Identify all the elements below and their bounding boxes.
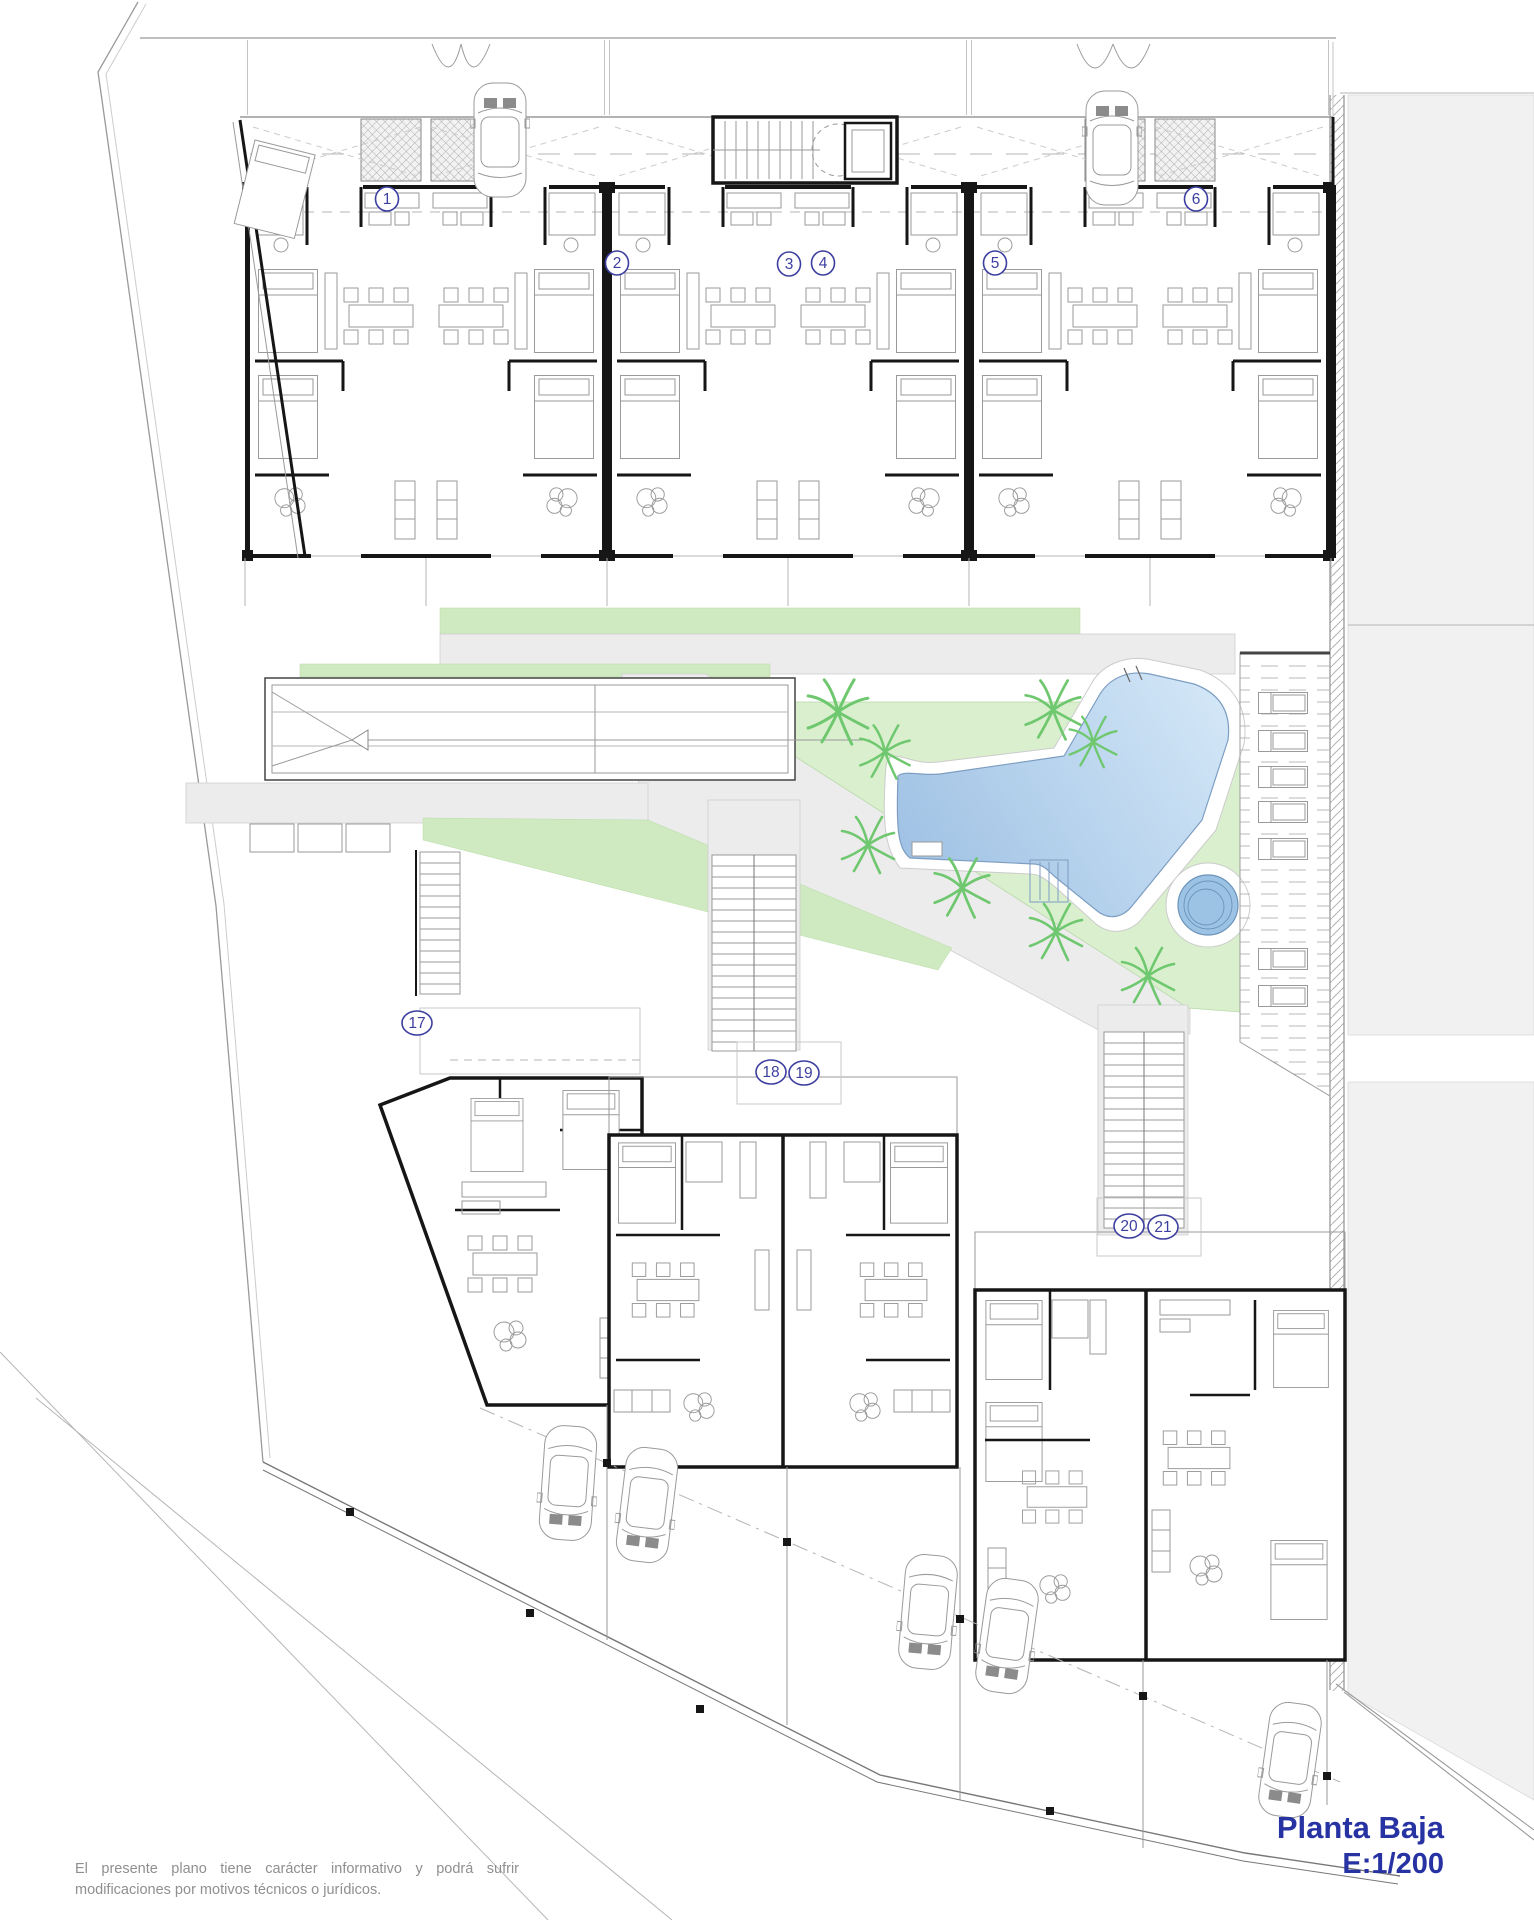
plan-title: Planta Baja xyxy=(1277,1810,1444,1847)
unit-label: 17 xyxy=(402,1011,432,1035)
car-icon xyxy=(1252,1699,1327,1820)
svg-text:1: 1 xyxy=(383,191,392,208)
unit-label: 1 xyxy=(376,187,399,211)
pool-bench xyxy=(912,842,942,856)
svg-text:3: 3 xyxy=(785,256,794,273)
stair-core xyxy=(713,117,897,183)
svg-text:19: 19 xyxy=(795,1065,812,1082)
sun-lounger-icon xyxy=(1259,692,1308,714)
svg-text:4: 4 xyxy=(819,255,828,272)
unit-label: 19 xyxy=(789,1061,819,1085)
unit-label: 20 xyxy=(1114,1214,1144,1238)
sun-lounger-icon xyxy=(1259,766,1308,788)
svg-text:2: 2 xyxy=(613,255,622,272)
disclaimer-line-2: modificaciones por motivos técnicos o ju… xyxy=(75,1882,381,1898)
sun-deck xyxy=(1240,653,1330,1096)
stair-18-19 xyxy=(708,800,800,1051)
title-block: Planta Baja E:1/200 xyxy=(1277,1810,1444,1881)
svg-text:20: 20 xyxy=(1120,1218,1138,1235)
car-icon xyxy=(893,1553,963,1672)
unit-17-block xyxy=(380,1008,642,1405)
car-icon xyxy=(1082,91,1142,205)
sun-lounger-icon xyxy=(1259,801,1308,823)
disclaimer-text: El presente plano tiene carácter informa… xyxy=(75,1859,519,1903)
sun-lounger-icon xyxy=(1259,948,1308,970)
site-plan-svg: 1234561718192021 xyxy=(0,0,1534,1920)
green-strip-top xyxy=(440,608,1080,634)
top-building xyxy=(233,40,1336,606)
unit-label: 5 xyxy=(984,251,1007,275)
sun-loungers xyxy=(1259,692,1308,1007)
svg-text:21: 21 xyxy=(1154,1219,1171,1236)
units-18-19-block xyxy=(609,1042,957,1467)
disclaimer-line-1: El presente plano tiene carácter informa… xyxy=(75,1861,519,1877)
svg-text:5: 5 xyxy=(991,255,1000,272)
sun-lounger-icon xyxy=(1259,985,1308,1007)
sun-lounger-icon xyxy=(1259,730,1308,752)
unit-label: 4 xyxy=(812,251,835,275)
unit-label: 18 xyxy=(756,1060,786,1084)
unit-label: 6 xyxy=(1185,187,1208,211)
garage-door-arcs xyxy=(432,44,1150,68)
stair-left xyxy=(416,850,460,996)
car-icon xyxy=(534,1424,602,1542)
unit-label: 21 xyxy=(1148,1215,1178,1239)
car-icon xyxy=(470,83,530,197)
spa-circle xyxy=(1178,875,1238,935)
apartment-unit xyxy=(1150,40,1334,561)
svg-text:18: 18 xyxy=(762,1064,779,1081)
plan-scale: E:1/200 xyxy=(1277,1847,1444,1881)
stair-20-21 xyxy=(1098,1005,1188,1235)
unit-label: 2 xyxy=(606,251,629,275)
right-street xyxy=(1330,93,1534,1840)
floor-plan: 1234561718192021 El presente plano tiene… xyxy=(0,0,1534,1920)
svg-text:6: 6 xyxy=(1192,191,1201,208)
sun-lounger-icon xyxy=(1259,838,1308,860)
apartment-unit xyxy=(242,40,426,561)
garage-ramp xyxy=(265,678,870,780)
unit-label: 3 xyxy=(778,252,801,276)
svg-text:17: 17 xyxy=(408,1015,425,1032)
